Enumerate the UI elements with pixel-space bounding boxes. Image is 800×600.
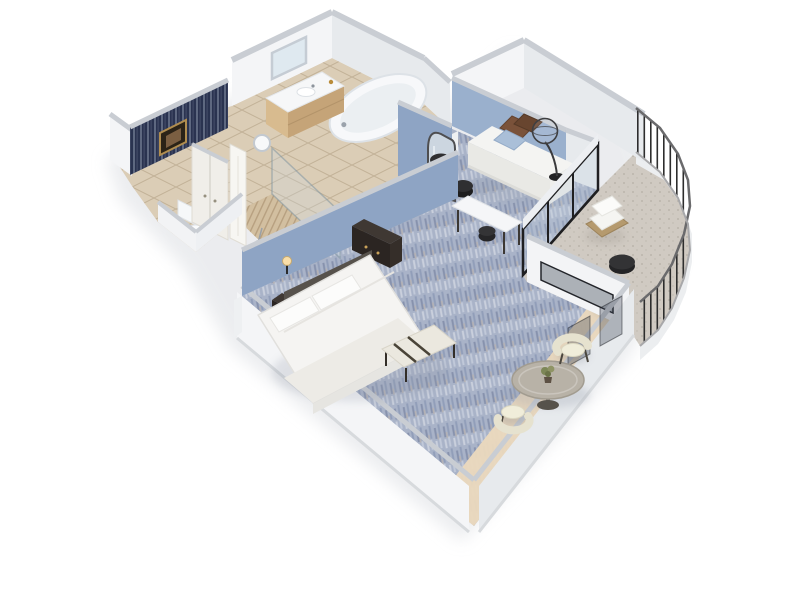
corner-wall [234,296,242,338]
sink-basin [297,88,315,97]
ceiling-light [254,135,270,151]
faucet [311,84,314,87]
drawer-knob [365,246,368,249]
black-side-table [609,255,635,275]
amenity-bottle [329,80,333,84]
table-base [537,400,559,410]
chair-seat [562,344,585,357]
isometric-floor-plan [0,0,800,600]
door-knob [214,200,217,203]
drawer-knob [377,252,380,255]
door-knob [204,195,207,198]
floor-plan-render [0,0,800,600]
chair-seat [502,406,525,419]
lamp-cage-shade [533,119,558,144]
desk-stool-top [479,226,496,236]
